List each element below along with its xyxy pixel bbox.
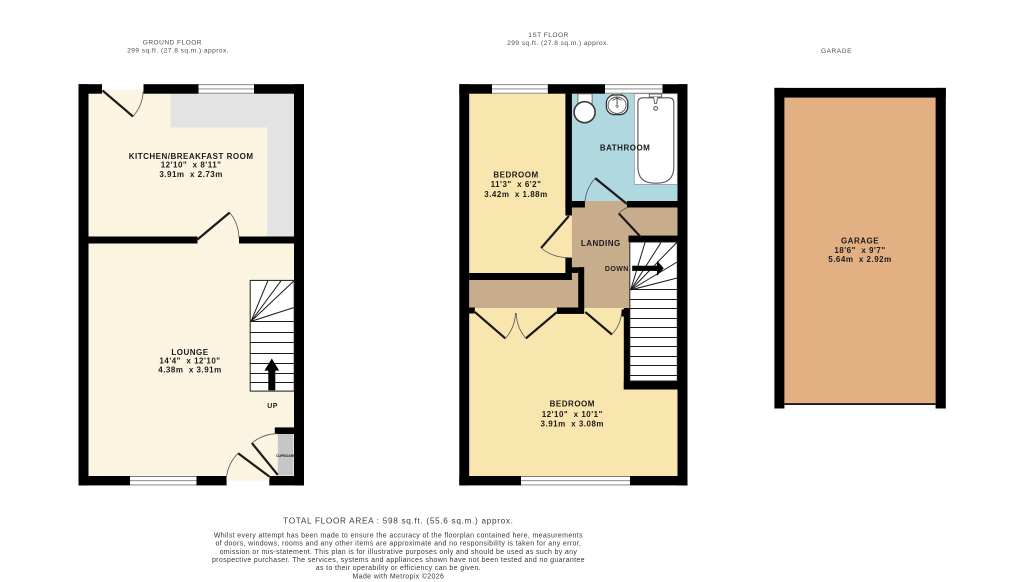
svg-text:18'6" x 9'7": 18'6" x 9'7"	[834, 246, 885, 255]
svg-text:3.91m x 2.73m: 3.91m x 2.73m	[159, 170, 222, 179]
svg-text:omission or mis-statement. Thi: omission or mis-statement. This plan is …	[220, 549, 578, 556]
svg-text:12'10" x 10'1": 12'10" x 10'1"	[542, 410, 603, 419]
svg-text:DOWN: DOWN	[605, 266, 629, 273]
svg-text:Whilst every attempt has been: Whilst every attempt has been made to en…	[214, 532, 583, 539]
svg-text:BEDROOM: BEDROOM	[493, 171, 538, 180]
svg-text:12'10" x 8'11": 12'10" x 8'11"	[161, 161, 222, 170]
svg-text:BATHROOM: BATHROOM	[600, 143, 651, 152]
svg-text:of doors, windows, rooms and a: of doors, windows, rooms and any other i…	[215, 541, 581, 548]
svg-text:CUPBOARD: CUPBOARD	[276, 454, 296, 458]
svg-text:11'3" x 6'2": 11'3" x 6'2"	[491, 180, 542, 189]
svg-text:LANDING: LANDING	[581, 239, 621, 248]
svg-text:UP: UP	[267, 403, 278, 410]
svg-text:LOUNGE: LOUNGE	[171, 348, 208, 357]
svg-text:Made with Metropix ©2026: Made with Metropix ©2026	[353, 572, 445, 580]
svg-text:14'4" x 12'10": 14'4" x 12'10"	[159, 357, 220, 366]
svg-text:GARAGE: GARAGE	[841, 236, 879, 245]
svg-text:GROUND FLOOR: GROUND FLOOR	[143, 39, 202, 46]
svg-text:prospective purchaser. The ser: prospective purchaser. The services, sys…	[212, 557, 585, 564]
svg-text:BEDROOM: BEDROOM	[550, 400, 595, 409]
svg-text:1ST FLOOR: 1ST FLOOR	[528, 32, 569, 39]
svg-text:TOTAL FLOOR AREA : 598 sq.ft.: TOTAL FLOOR AREA : 598 sq.ft. (55.6 sq.m…	[283, 516, 514, 525]
svg-text:299 sq.ft. (27.8 sq.m.) approx: 299 sq.ft. (27.8 sq.m.) approx.	[127, 47, 229, 54]
svg-text:GARAGE: GARAGE	[821, 48, 852, 55]
svg-text:3.42m x 1.88m: 3.42m x 1.88m	[484, 190, 547, 199]
svg-text:3.91m x 3.08m: 3.91m x 3.08m	[541, 419, 604, 428]
svg-text:4.38m x 3.91m: 4.38m x 3.91m	[158, 366, 221, 375]
svg-text:as to their operability or eff: as to their operability or efficiency ca…	[316, 565, 481, 572]
svg-text:299 sq.ft. (27.8 sq.m.) approx: 299 sq.ft. (27.8 sq.m.) approx.	[507, 40, 609, 47]
svg-text:5.64m x 2.92m: 5.64m x 2.92m	[828, 255, 891, 264]
